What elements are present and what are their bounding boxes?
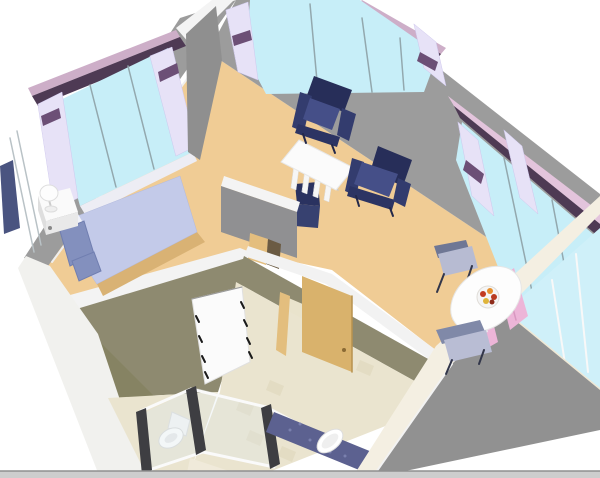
scene-canvas[interactable] xyxy=(0,0,600,478)
fruit-2 xyxy=(487,288,493,294)
status-bar xyxy=(0,471,600,478)
fruit-3 xyxy=(491,294,497,300)
counter-speckle-5 xyxy=(344,455,347,458)
counter-speckle-3 xyxy=(299,423,302,426)
fruit-5 xyxy=(490,300,495,305)
counter-speckle-2 xyxy=(309,439,312,442)
nightstand-knob xyxy=(48,226,52,230)
armchair3-seat[interactable] xyxy=(295,204,320,228)
fruit-4 xyxy=(483,298,489,304)
counter-speckle-1 xyxy=(289,429,292,432)
bathroom-door-handle[interactable] xyxy=(342,348,346,352)
fruit-1 xyxy=(480,291,486,297)
3d-home-view[interactable] xyxy=(0,0,600,478)
lamp-shade[interactable] xyxy=(40,185,58,201)
lamp-base xyxy=(45,206,57,212)
